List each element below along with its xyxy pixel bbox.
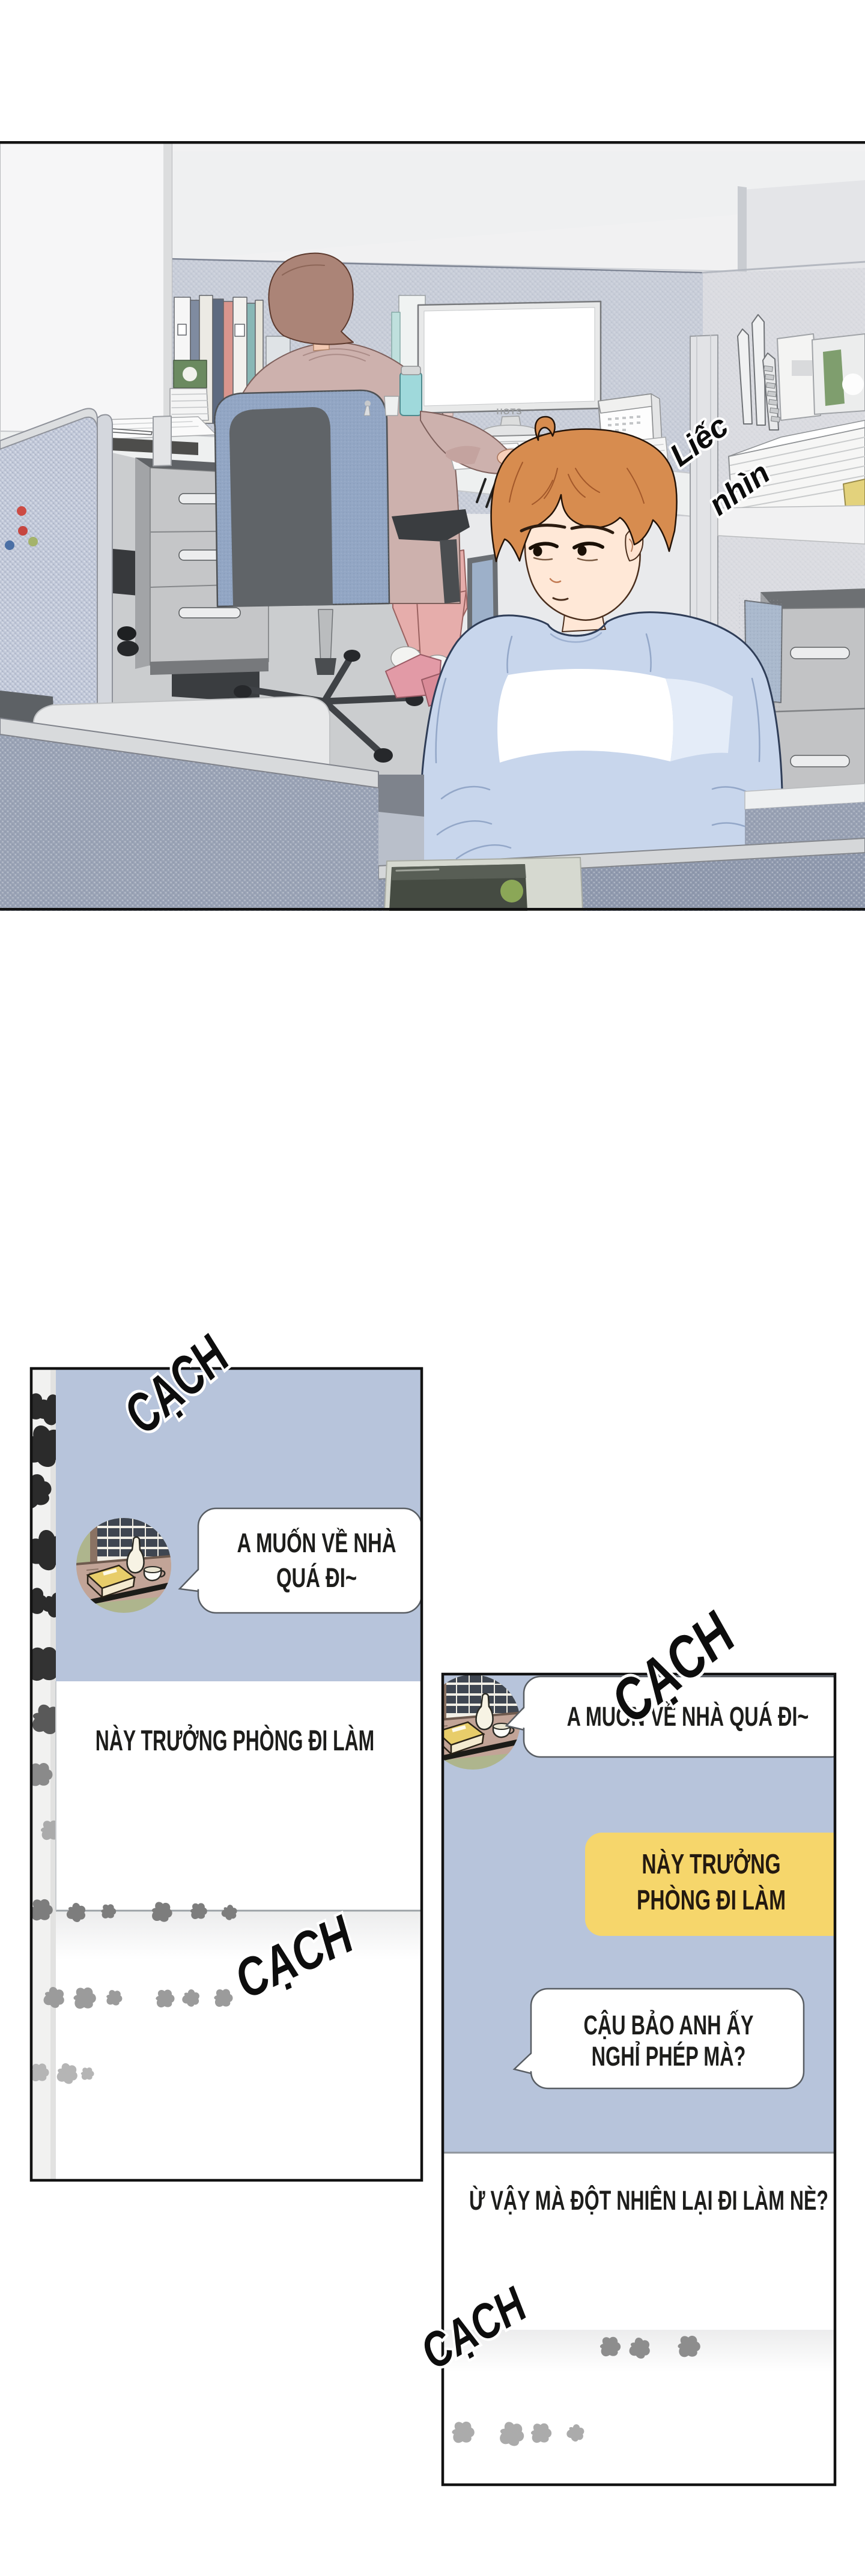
svg-text:NGHỈ PHÉP MÀ?: NGHỈ PHÉP MÀ? [592,2042,746,2072]
svg-text:HOTS: HOTS [497,407,523,416]
svg-text:Ừ VẬY MÀ ĐỘT NHIÊN LẠI ĐI LÀM: Ừ VẬY MÀ ĐỘT NHIÊN LẠI ĐI LÀM NÈ? [469,2185,828,2216]
svg-text:CẬU BẢO ANH ẤY: CẬU BẢO ANH ẤY [583,2010,753,2040]
svg-text:NÀY TRƯỞNG PHÒNG ĐI LÀM: NÀY TRƯỞNG PHÒNG ĐI LÀM [96,1724,374,1756]
svg-text:QUÁ ĐI~: QUÁ ĐI~ [276,1563,357,1593]
svg-text:A MUỐN VỀ NHÀ: A MUỐN VỀ NHÀ [237,1528,396,1558]
svg-text:PHÒNG ĐI LÀM: PHÒNG ĐI LÀM [637,1884,786,1916]
svg-text:NÀY TRƯỞNG: NÀY TRƯỞNG [642,1848,780,1880]
svg-text:A MUỐN VỀ NHÀ QUÁ ĐI~: A MUỐN VỀ NHÀ QUÁ ĐI~ [567,1701,809,1732]
